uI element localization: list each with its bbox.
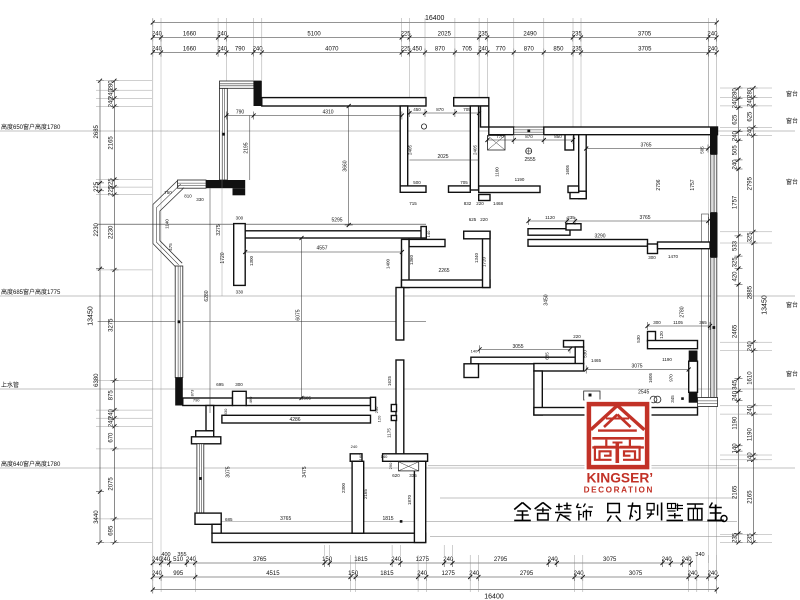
svg-text:850: 850 (553, 47, 564, 53)
svg-text:695: 695 (216, 382, 224, 387)
svg-text:1468: 1468 (493, 201, 504, 206)
svg-text:850: 850 (554, 134, 562, 139)
svg-text:1815: 1815 (382, 516, 393, 522)
svg-text:870: 870 (436, 107, 444, 112)
svg-text:450: 450 (412, 47, 423, 53)
svg-text:1300: 1300 (249, 255, 254, 266)
svg-text:420: 420 (733, 271, 739, 282)
svg-text:1275: 1275 (416, 557, 430, 563)
svg-text:2165: 2165 (363, 488, 368, 499)
svg-text:625: 625 (469, 217, 477, 222)
svg-text:KINGSER’: KINGSER’ (586, 471, 653, 486)
svg-text:1660: 1660 (183, 32, 197, 38)
svg-text:235: 235 (478, 32, 489, 38)
svg-text:1660: 1660 (183, 47, 197, 53)
svg-text:1105: 1105 (673, 320, 683, 325)
svg-text:3765: 3765 (640, 143, 651, 149)
svg-text:6380: 6380 (94, 373, 100, 387)
svg-text:685: 685 (225, 517, 233, 522)
svg-text:2300: 2300 (341, 482, 346, 493)
svg-text:3475: 3475 (302, 466, 308, 477)
svg-text:3660: 3660 (343, 160, 349, 171)
svg-text:230: 230 (374, 406, 379, 413)
svg-text:120: 120 (659, 331, 664, 339)
svg-text:240: 240 (707, 32, 718, 38)
svg-text:500: 500 (413, 180, 421, 185)
svg-text:790: 790 (193, 398, 200, 403)
svg-text:832: 832 (464, 201, 472, 206)
svg-text:240: 240 (186, 557, 197, 563)
svg-text:140: 140 (426, 230, 431, 237)
svg-text:1610: 1610 (748, 371, 754, 385)
svg-text:225: 225 (109, 185, 115, 196)
svg-text:505: 505 (733, 145, 739, 156)
svg-text:240: 240 (351, 444, 358, 449)
svg-text:高度650窗户高度1780: 高度650窗户高度1780 (1, 123, 61, 131)
svg-text:2230: 2230 (94, 222, 100, 236)
svg-text:1360: 1360 (409, 254, 414, 265)
svg-text:355: 355 (177, 552, 186, 558)
svg-text:窗台: 窗台 (786, 90, 798, 98)
svg-text:3765: 3765 (253, 557, 267, 563)
svg-text:150: 150 (348, 571, 359, 577)
svg-text:150: 150 (322, 557, 333, 563)
svg-text:2195: 2195 (244, 142, 250, 153)
svg-text:2025: 2025 (437, 154, 448, 160)
svg-text:2165: 2165 (109, 136, 115, 150)
svg-text:3075: 3075 (603, 557, 617, 563)
svg-text:2885: 2885 (748, 285, 754, 299)
svg-text:2025: 2025 (438, 32, 452, 38)
svg-text:705: 705 (463, 107, 471, 112)
svg-text:330: 330 (223, 408, 228, 415)
svg-text:510: 510 (173, 557, 184, 563)
svg-text:1190: 1190 (748, 427, 754, 441)
svg-text:2165: 2165 (748, 490, 754, 504)
svg-text:3075: 3075 (631, 364, 642, 370)
svg-text:6075: 6075 (295, 309, 301, 320)
svg-text:1190: 1190 (662, 357, 672, 362)
svg-text:13450: 13450 (88, 306, 95, 326)
svg-text:670: 670 (109, 432, 115, 443)
svg-text:3450: 3450 (544, 294, 550, 305)
svg-text:220: 220 (573, 334, 581, 339)
svg-text:290: 290 (388, 462, 393, 469)
svg-text:870: 870 (524, 47, 535, 53)
svg-text:2075: 2075 (109, 477, 115, 491)
svg-text:460: 460 (248, 396, 253, 403)
svg-text:235: 235 (733, 532, 739, 543)
svg-text:970: 970 (669, 374, 674, 382)
svg-text:140: 140 (748, 452, 754, 463)
svg-text:533: 533 (733, 240, 739, 251)
svg-text:2555: 2555 (524, 157, 535, 163)
svg-text:300: 300 (235, 382, 243, 387)
svg-text:1815: 1815 (380, 571, 394, 577)
svg-text:4515: 4515 (266, 571, 280, 577)
svg-text:1625: 1625 (387, 375, 392, 386)
svg-text:13450: 13450 (762, 295, 769, 315)
svg-text:16400: 16400 (484, 594, 504, 600)
svg-text:120: 120 (377, 415, 382, 422)
svg-text:1815: 1815 (354, 557, 368, 563)
svg-text:2780: 2780 (680, 306, 686, 317)
svg-text:220: 220 (476, 201, 484, 206)
svg-text:2230: 2230 (109, 225, 115, 239)
svg-text:窗台: 窗台 (786, 370, 798, 378)
svg-text:225: 225 (94, 181, 100, 192)
svg-text:高度640窗户高度1780: 高度640窗户高度1780 (1, 460, 61, 468)
svg-text:325: 325 (733, 257, 739, 268)
svg-text:220: 220 (480, 217, 488, 222)
svg-text:1100: 1100 (495, 167, 500, 177)
svg-text:3290: 3290 (594, 234, 605, 240)
svg-text:4070: 4070 (325, 47, 339, 53)
svg-text:1120: 1120 (545, 215, 555, 220)
svg-text:240: 240 (733, 159, 739, 170)
svg-text:1605: 1605 (565, 164, 570, 175)
svg-text:705: 705 (462, 47, 473, 53)
svg-text:240: 240 (733, 98, 739, 109)
svg-text:1190: 1190 (515, 177, 525, 182)
svg-text:1400: 1400 (386, 258, 391, 269)
svg-text:685: 685 (545, 352, 550, 360)
svg-text:2796: 2796 (656, 179, 662, 190)
svg-text:475: 475 (168, 243, 173, 251)
svg-text:770: 770 (496, 134, 504, 139)
svg-text:140: 140 (381, 454, 388, 459)
svg-text:16400: 16400 (425, 15, 445, 22)
svg-text:450: 450 (413, 107, 421, 112)
svg-text:705: 705 (460, 180, 468, 185)
svg-text:400: 400 (161, 552, 170, 558)
svg-text:240: 240 (391, 557, 402, 563)
svg-text:330: 330 (196, 197, 204, 202)
svg-text:1757: 1757 (733, 195, 739, 209)
svg-text:505: 505 (700, 146, 705, 154)
svg-text:240: 240 (682, 557, 693, 563)
svg-text:3440: 3440 (94, 510, 100, 524)
svg-text:870: 870 (525, 134, 533, 139)
svg-text:2685: 2685 (94, 124, 100, 138)
svg-text:DECORATION: DECORATION (584, 486, 654, 495)
svg-text:330: 330 (236, 290, 244, 295)
svg-text:300: 300 (653, 320, 661, 325)
svg-text:530: 530 (636, 335, 641, 343)
svg-text:2795: 2795 (520, 571, 534, 577)
svg-text:5100: 5100 (307, 32, 321, 38)
svg-text:280: 280 (109, 80, 115, 91)
svg-text:窗台: 窗台 (786, 301, 798, 309)
svg-text:140: 140 (471, 349, 478, 354)
svg-text:4557: 4557 (316, 246, 327, 252)
svg-text:3075: 3075 (629, 571, 643, 577)
svg-text:530: 530 (583, 350, 588, 358)
svg-text:2545: 2545 (638, 390, 649, 396)
svg-text:280: 280 (748, 87, 754, 98)
svg-text:870: 870 (435, 47, 446, 53)
svg-text:365: 365 (699, 320, 707, 325)
svg-text:窗台: 窗台 (786, 117, 798, 125)
svg-text:1465: 1465 (591, 358, 602, 363)
svg-text:1470: 1470 (668, 254, 679, 259)
svg-text:5295: 5295 (331, 218, 342, 224)
svg-text:2405: 2405 (408, 144, 413, 155)
svg-text:1605: 1605 (648, 372, 653, 383)
svg-text:995: 995 (173, 571, 184, 577)
svg-text:695: 695 (109, 525, 115, 536)
svg-text:235: 235 (567, 215, 575, 220)
svg-text:4310: 4310 (322, 110, 333, 116)
svg-text:240: 240 (160, 557, 171, 563)
svg-text:335: 335 (409, 473, 417, 478)
svg-text:240: 240 (443, 557, 454, 563)
svg-text:790: 790 (236, 110, 245, 116)
svg-text:3765: 3765 (280, 516, 291, 522)
svg-text:810: 810 (184, 194, 192, 199)
svg-text:2405: 2405 (472, 144, 477, 155)
svg-text:1685: 1685 (301, 396, 312, 401)
svg-text:625: 625 (748, 111, 754, 122)
svg-text:2490: 2490 (523, 32, 537, 38)
svg-text:窗台: 窗台 (786, 178, 798, 186)
svg-text:2795: 2795 (748, 176, 754, 190)
svg-text:1720: 1720 (220, 252, 226, 263)
svg-text:325: 325 (748, 232, 754, 243)
svg-text:2165: 2165 (733, 485, 739, 499)
svg-text:2465: 2465 (733, 324, 739, 338)
svg-text:3075: 3075 (226, 466, 232, 477)
svg-text:620: 620 (392, 473, 400, 478)
svg-text:873: 873 (190, 389, 195, 396)
svg-text:240: 240 (548, 557, 559, 563)
svg-text:3055: 3055 (512, 344, 523, 350)
svg-text:3705: 3705 (638, 47, 652, 53)
svg-text:160: 160 (358, 453, 363, 460)
svg-text:3275: 3275 (216, 224, 222, 235)
svg-text:750: 750 (164, 190, 172, 195)
svg-text:625: 625 (733, 114, 739, 125)
svg-text:790: 790 (235, 47, 246, 53)
svg-text:715: 715 (409, 201, 417, 206)
svg-text:345: 345 (733, 379, 739, 390)
svg-text:上水管: 上水管 (1, 381, 19, 389)
svg-text:2795: 2795 (494, 557, 508, 563)
svg-text:1190: 1190 (733, 416, 739, 430)
svg-text:345: 345 (670, 395, 675, 403)
svg-text:300: 300 (236, 216, 244, 221)
svg-text:1720: 1720 (482, 256, 487, 267)
svg-text:875: 875 (109, 390, 115, 401)
svg-text:1870: 1870 (407, 494, 412, 505)
svg-text:140: 140 (733, 443, 739, 454)
svg-text:1175: 1175 (387, 428, 392, 438)
svg-text:1275: 1275 (442, 571, 456, 577)
svg-text:770: 770 (496, 47, 507, 53)
svg-text:1340: 1340 (474, 252, 479, 263)
svg-text:240: 240 (662, 557, 673, 563)
svg-text:3765: 3765 (639, 215, 650, 221)
svg-text:2265: 2265 (438, 268, 449, 274)
svg-text:300: 300 (648, 255, 656, 260)
svg-text:3275: 3275 (109, 318, 115, 332)
svg-text:6280: 6280 (204, 290, 210, 301)
svg-text:1140: 1140 (165, 219, 170, 229)
svg-text:高度685窗户高度1775: 高度685窗户高度1775 (1, 288, 61, 296)
svg-text:240: 240 (733, 390, 739, 401)
svg-text:4286: 4286 (289, 417, 300, 423)
svg-text:1757: 1757 (690, 179, 696, 190)
svg-text:280: 280 (733, 88, 739, 99)
svg-text:3705: 3705 (638, 32, 652, 38)
